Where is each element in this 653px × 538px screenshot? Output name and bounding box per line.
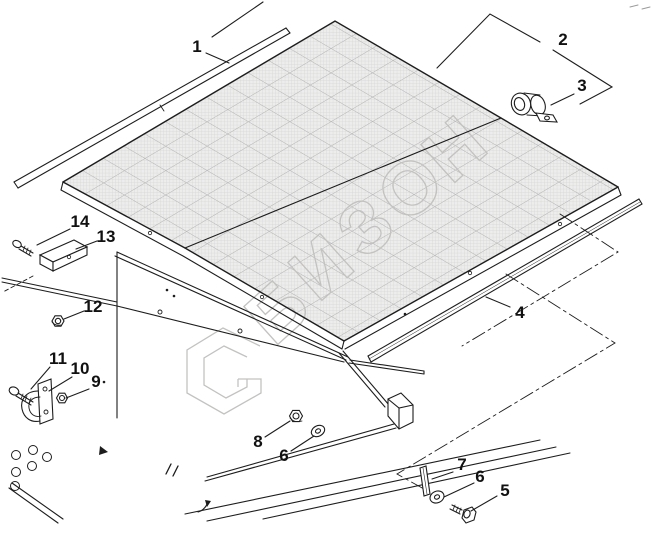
callout-10: 10 [71,359,90,378]
callout-13: 13 [97,227,116,246]
band-hole [558,222,561,225]
callout-4: 4 [515,303,525,322]
callout-1: 1 [192,37,201,56]
callout-7: 7 [457,455,466,474]
callout-2: 2 [558,30,567,49]
speck [404,313,407,316]
watermark-logo-icon [187,328,261,414]
box-rim-corner-cap [388,393,413,429]
callout-11: 11 [49,349,67,368]
nut-part-12 [52,316,64,326]
parts-diagram: Б И З О Н [0,0,653,538]
callout-9: 9 [91,372,100,391]
bracket-part-10 [22,379,53,424]
callout-8: 8 [253,432,262,451]
clamp-part-3 [509,91,557,122]
strip-part-7 [420,466,430,496]
washer-part-6-middle [309,423,326,439]
washer-part-6-bottom [428,489,446,505]
diagram-canvas: Б И З О Н [0,0,653,538]
callout-3: 3 [577,76,586,95]
hatch-mark [173,466,178,476]
box-side-holes [11,446,52,491]
band-hole [148,231,151,234]
callout-6-middle: 6 [279,446,288,465]
speck [173,295,176,298]
callout-6-bottom: 6 [475,467,484,486]
callout-12: 12 [84,297,103,316]
nut-part-8 [290,410,303,421]
callout-14: 14 [71,212,90,231]
callout-5: 5 [500,481,509,500]
hatch-mark [166,464,171,474]
rim-hole [158,310,162,314]
bracket-part-13 [3,240,87,292]
rim-hole [238,329,242,333]
speck [166,289,169,292]
corner-artifact [630,5,650,9]
band-hole [468,271,471,274]
bolt-part-5 [450,505,476,523]
small-arrow [99,446,108,455]
speck [103,381,106,384]
bolt-part-14 [11,239,33,256]
bolt-part-11 [8,385,33,405]
